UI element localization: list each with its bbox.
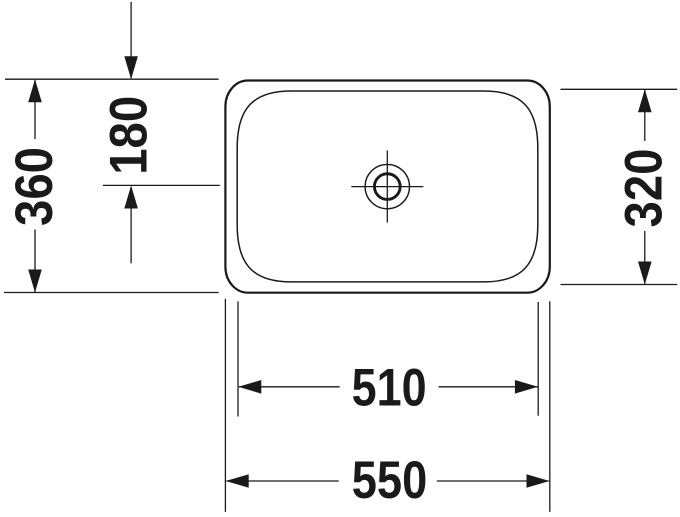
svg-text:180: 180 bbox=[100, 96, 159, 175]
svg-text:550: 550 bbox=[352, 451, 428, 510]
svg-text:320: 320 bbox=[615, 149, 674, 228]
svg-text:510: 510 bbox=[352, 358, 427, 417]
svg-text:360: 360 bbox=[5, 147, 64, 226]
